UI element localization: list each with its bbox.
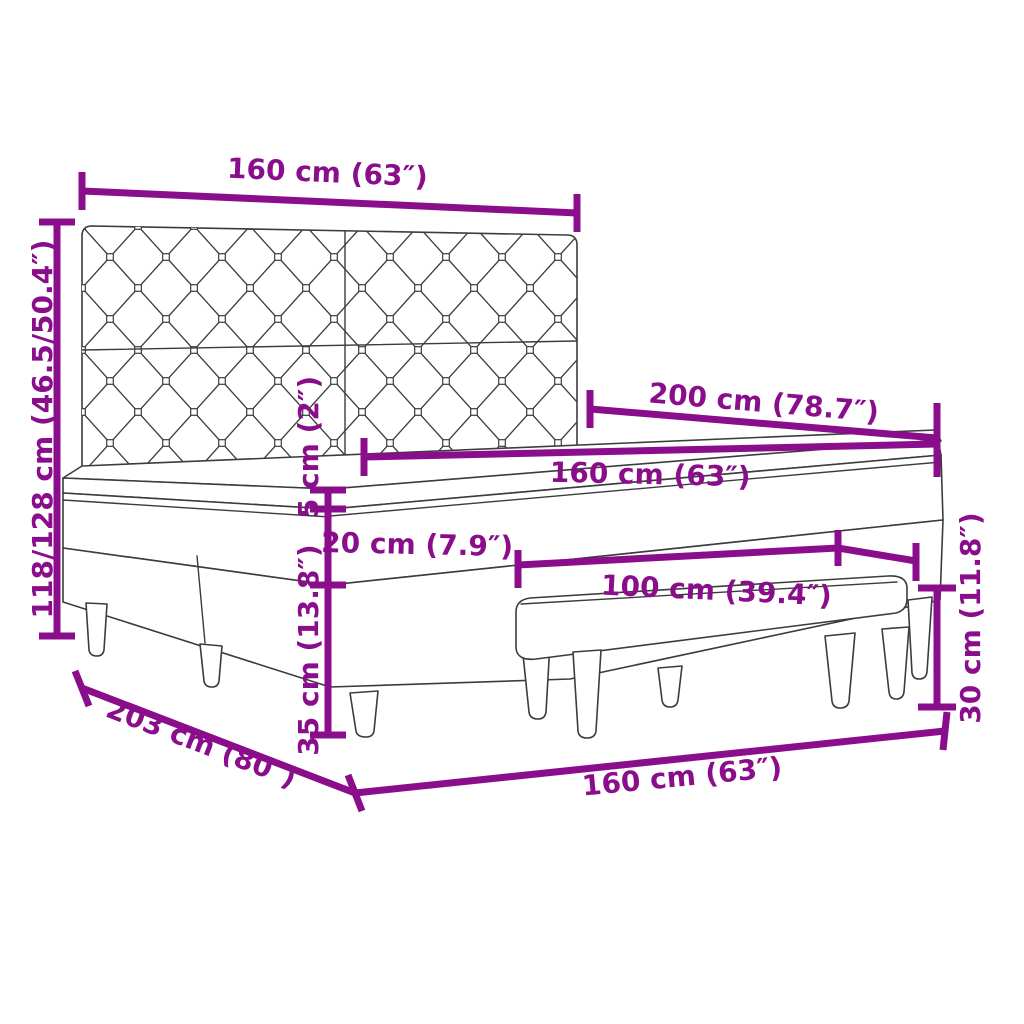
dim-label-frame-length: 203 cm (80″) — [102, 692, 301, 795]
dim-label-bench-height: 30 cm (11.8″) — [954, 512, 987, 723]
headboard — [82, 226, 577, 477]
dim-line — [82, 191, 577, 213]
bed-illustration — [63, 226, 943, 737]
bench-leg — [658, 666, 682, 707]
dim-label-mattress-width: 160 cm (63″) — [549, 456, 750, 494]
headboard-tufting-pattern — [82, 226, 577, 477]
dim-label-mattress-thickness: 20 cm (7.9″) — [321, 526, 514, 563]
bench-leg — [573, 650, 601, 738]
bench-leg — [882, 627, 909, 699]
bed-leg — [908, 597, 932, 679]
dim-label-topper-thickness: 5 cm (2″) — [292, 376, 325, 518]
dim-label-headboard-width: 160 cm (63″) — [226, 152, 428, 194]
dim-tick — [943, 712, 947, 750]
bed-leg — [86, 603, 107, 656]
dim-label-overall-height: 118/128 cm (46.5/50.4″) — [26, 240, 59, 619]
dimension-diagram-page: 160 cm (63″) 118/128 cm (46.5/50.4″) 200… — [0, 0, 1024, 1024]
dimension-diagram: 160 cm (63″) 118/128 cm (46.5/50.4″) 200… — [0, 0, 1024, 1024]
bed-leg — [200, 644, 222, 687]
dim-label-base-height: 35 cm (13.8″) — [292, 544, 325, 755]
bed-leg — [350, 691, 378, 737]
bench-leg — [825, 633, 855, 708]
